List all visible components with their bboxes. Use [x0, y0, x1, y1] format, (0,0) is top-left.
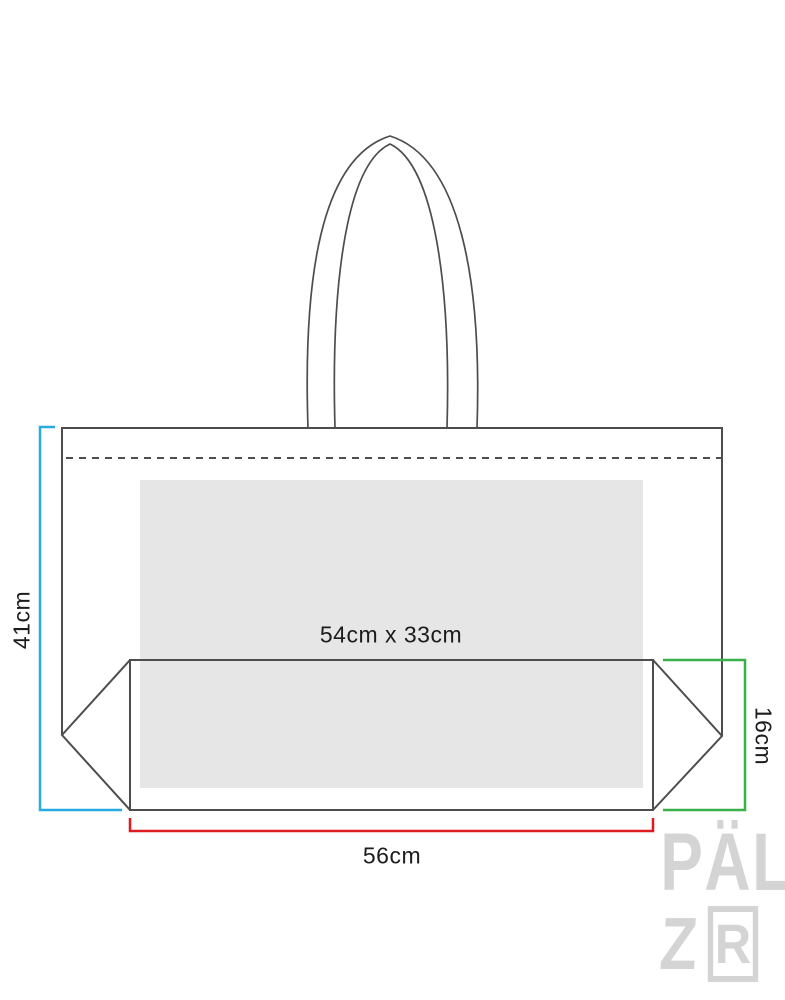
tote-bag-dimension-diagram: 41cm 54cm x 33cm 56cm 16cm PÄL Z R	[0, 0, 785, 1000]
palzr-watermark-logo: PÄL Z R	[625, 822, 785, 982]
height-dimension-line	[40, 427, 122, 810]
watermark-line1: PÄL	[660, 822, 785, 904]
right-gusset-triangle	[653, 660, 722, 810]
watermark-letter-z: Z	[658, 907, 699, 981]
bag-width-label: 56cm	[363, 843, 421, 870]
handle-outer-curve	[307, 136, 477, 428]
watermark-letter-r-box: R	[708, 906, 758, 982]
gusset-depth-label: 16cm	[750, 707, 777, 765]
width-dimension-line	[130, 818, 653, 831]
watermark-line2: Z R	[625, 906, 785, 982]
bag-height-label: 41cm	[9, 591, 36, 649]
handle-inner-curve	[334, 144, 447, 428]
print-area-label: 54cm x 33cm	[320, 622, 462, 649]
watermark-letter-r: R	[715, 916, 751, 972]
left-gusset-triangle	[62, 660, 130, 810]
